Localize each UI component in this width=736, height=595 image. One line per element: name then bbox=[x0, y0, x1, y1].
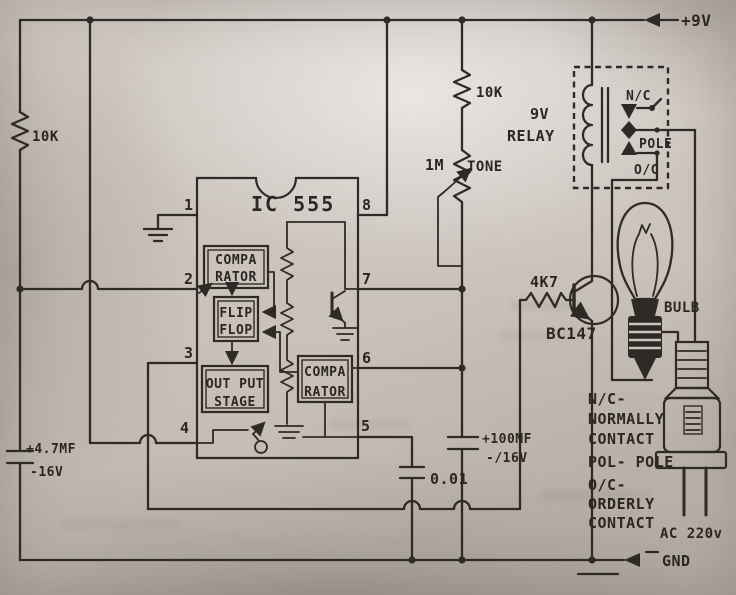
bulb-label: BULB bbox=[664, 300, 700, 316]
bulb-screw-base bbox=[628, 316, 662, 358]
relay-coil-icon bbox=[583, 85, 592, 165]
comparator-bottom-line2: RATOR bbox=[304, 385, 346, 400]
bulb-to-plug-wire bbox=[660, 332, 678, 342]
flipflop-line2: FLOP bbox=[219, 323, 252, 338]
pin-4: 4 bbox=[180, 419, 190, 437]
pin1-ground-icon bbox=[144, 229, 172, 241]
vcc-arrow-icon bbox=[644, 13, 660, 27]
resistor-4k7-label: 4K7 bbox=[530, 273, 559, 291]
legend-line-4: POL- POLE bbox=[588, 453, 674, 471]
ff-feed-bottom-arrow-icon bbox=[264, 332, 298, 372]
vcc-label: +9V bbox=[681, 11, 711, 30]
cap-4u7-voltage: -16V bbox=[30, 465, 63, 480]
output-bubble-arrow-icon bbox=[253, 423, 264, 434]
bulb: BULB bbox=[618, 203, 700, 380]
resistor-10k-left bbox=[12, 112, 28, 150]
relay-label-line2: RELAY bbox=[507, 127, 555, 145]
load-circuit: BULB AC 220v bbox=[612, 130, 726, 542]
oc-label: O/C bbox=[634, 163, 659, 178]
pin-6: 6 bbox=[362, 349, 372, 367]
pin5-wire bbox=[358, 437, 412, 467]
bulb-glass-icon bbox=[618, 203, 673, 299]
cap-100m-voltage: -/16V bbox=[486, 451, 528, 466]
oc-contact-icon bbox=[621, 141, 637, 155]
legend-line-3: CONTACT bbox=[588, 430, 655, 448]
ic-external-wires bbox=[20, 20, 520, 509]
ac-plug: AC 220v bbox=[656, 342, 726, 542]
ic-transistor-ground-icon bbox=[333, 328, 357, 340]
legend-line-6: ORDERLY bbox=[588, 495, 655, 513]
relay: 9V RELAY N/C POLE O/C bbox=[507, 20, 695, 188]
cap-001-label: 0.01 bbox=[430, 470, 468, 488]
cap-001-plates bbox=[400, 467, 424, 478]
output-stage-line1: OUT PUT bbox=[206, 377, 264, 392]
relay-contacts: N/C POLE O/C bbox=[612, 89, 695, 180]
output-stage-line2: STAGE bbox=[214, 395, 256, 410]
plug-cap bbox=[676, 342, 708, 388]
flipflop-line1: FLIP bbox=[219, 306, 252, 321]
resistor-4k7 bbox=[520, 293, 574, 307]
pot-tone-label: TONE bbox=[467, 159, 503, 175]
pin2-wire bbox=[20, 281, 197, 289]
pin-1: 1 bbox=[184, 196, 194, 214]
ac-label: AC 220v bbox=[660, 526, 723, 542]
cap-4u7-label: +4.7MF bbox=[26, 442, 76, 457]
ic-555: IC 555 1 2 3 4 5 6 7 8 COMPA RATOR FLIP … bbox=[180, 178, 372, 458]
legend-text: N/C- NORMALLY CONTACT POL- POLE O/C- ORD… bbox=[588, 390, 674, 532]
gnd-label: GND bbox=[662, 552, 691, 570]
cap-100m-label: +100MF bbox=[482, 432, 532, 447]
pin3-wire bbox=[148, 363, 197, 509]
relay-core-bars bbox=[602, 88, 608, 162]
resistor-10k-top-label: 10K bbox=[476, 85, 503, 101]
legend-line-1: N/C- bbox=[588, 390, 626, 408]
pin-2: 2 bbox=[184, 270, 194, 288]
output-bubble-icon bbox=[255, 441, 267, 453]
pole-label: POLE bbox=[639, 137, 672, 152]
bulb-tip bbox=[634, 358, 656, 380]
comparator-bottom-line1: COMPA bbox=[304, 365, 346, 380]
legend-line-7: CONTACT bbox=[588, 514, 655, 532]
gnd-arrow-icon bbox=[624, 553, 640, 567]
resistor-10k-left-label: 10K bbox=[32, 129, 59, 145]
nc-label: N/C bbox=[626, 89, 651, 104]
ic-internal-resistors bbox=[275, 222, 358, 438]
comparator-top-line2: RATOR bbox=[215, 270, 257, 285]
plug-pins bbox=[684, 468, 706, 515]
pin4-internal-wire bbox=[197, 430, 248, 443]
pot-value-label: 1M bbox=[425, 156, 444, 174]
relay-label-line1: 9V bbox=[530, 105, 549, 123]
ic-title: IC 555 bbox=[251, 192, 335, 216]
resistor-10k-top bbox=[454, 70, 470, 108]
pot-rheostat-link bbox=[438, 192, 462, 266]
pin-3: 3 bbox=[184, 344, 194, 362]
nc-contact-icon bbox=[621, 104, 637, 119]
pin-5: 5 bbox=[361, 417, 371, 435]
pin-8: 8 bbox=[362, 196, 372, 214]
legend-line-5: O/C- bbox=[588, 476, 626, 494]
pin-7: 7 bbox=[362, 270, 372, 288]
pin1-wire bbox=[158, 215, 197, 229]
pole-contact-icon bbox=[621, 121, 637, 139]
ic-internal-transistor bbox=[332, 291, 357, 340]
comparator-top-line1: COMPA bbox=[215, 253, 257, 268]
transistor-label: BC147 bbox=[546, 324, 597, 343]
legend-line-2: NORMALLY bbox=[588, 410, 664, 428]
pin8-wire bbox=[358, 20, 387, 215]
ic-internal-ground-icon bbox=[275, 426, 303, 438]
scanned-schematic-page: +9V GND 10K +4.7MF -16V bbox=[0, 0, 736, 595]
transistor-circle bbox=[570, 276, 618, 324]
circuit-diagram: +9V GND 10K +4.7MF -16V bbox=[0, 0, 736, 595]
